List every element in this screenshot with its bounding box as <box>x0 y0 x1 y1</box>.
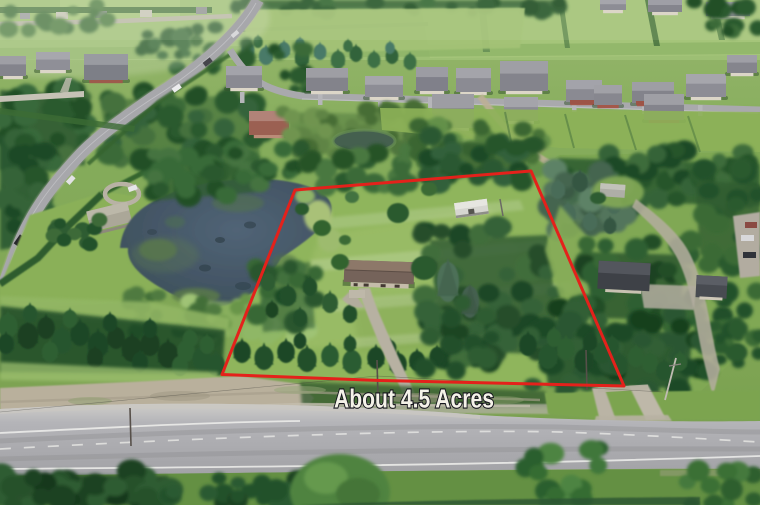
svg-text:About 4.5 Acres: About 4.5 Acres <box>334 386 494 414</box>
